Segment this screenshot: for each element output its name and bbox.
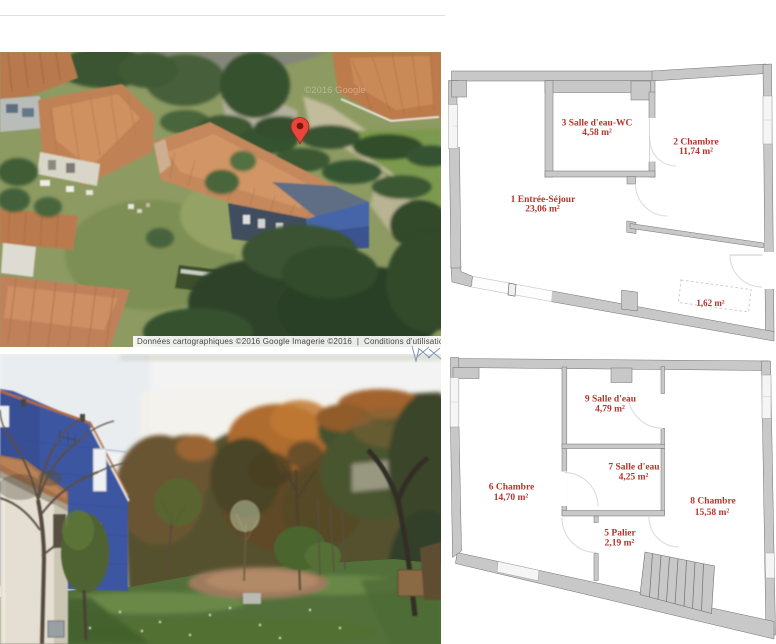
svg-text:1,62 m²: 1,62 m² xyxy=(696,298,724,308)
svg-text:9 Salle d'eau: 9 Salle d'eau xyxy=(585,394,637,404)
svg-text:4,58 m²: 4,58 m² xyxy=(582,128,612,138)
svg-text:5 Palier: 5 Palier xyxy=(604,528,636,538)
svg-text:11,74 m²: 11,74 m² xyxy=(679,147,713,157)
svg-text:3 Salle d'eau-WC: 3 Salle d'eau-WC xyxy=(562,118,633,128)
svg-text:4,25 m²: 4,25 m² xyxy=(619,472,649,482)
svg-text:2 Chambre: 2 Chambre xyxy=(673,137,718,147)
svg-text:8 Chambre: 8 Chambre xyxy=(690,496,735,506)
svg-text:Données cartographiques ©2016: Données cartographiques ©2016 Google Ima… xyxy=(137,337,441,346)
svg-text:6 Chambre: 6 Chambre xyxy=(489,482,534,492)
svg-text:2,19 m²: 2,19 m² xyxy=(605,538,635,548)
svg-text:4,79 m²: 4,79 m² xyxy=(595,404,625,414)
svg-text:©2016 Google: ©2016 Google xyxy=(304,85,365,96)
svg-text:23,06 m²: 23,06 m² xyxy=(525,205,560,215)
svg-text:1 Entrée-Séjour: 1 Entrée-Séjour xyxy=(511,195,576,205)
svg-text:7 Salle d'eau: 7 Salle d'eau xyxy=(608,462,660,472)
svg-text:14,70 m²: 14,70 m² xyxy=(494,493,529,503)
svg-text:15,58 m²: 15,58 m² xyxy=(695,508,730,518)
